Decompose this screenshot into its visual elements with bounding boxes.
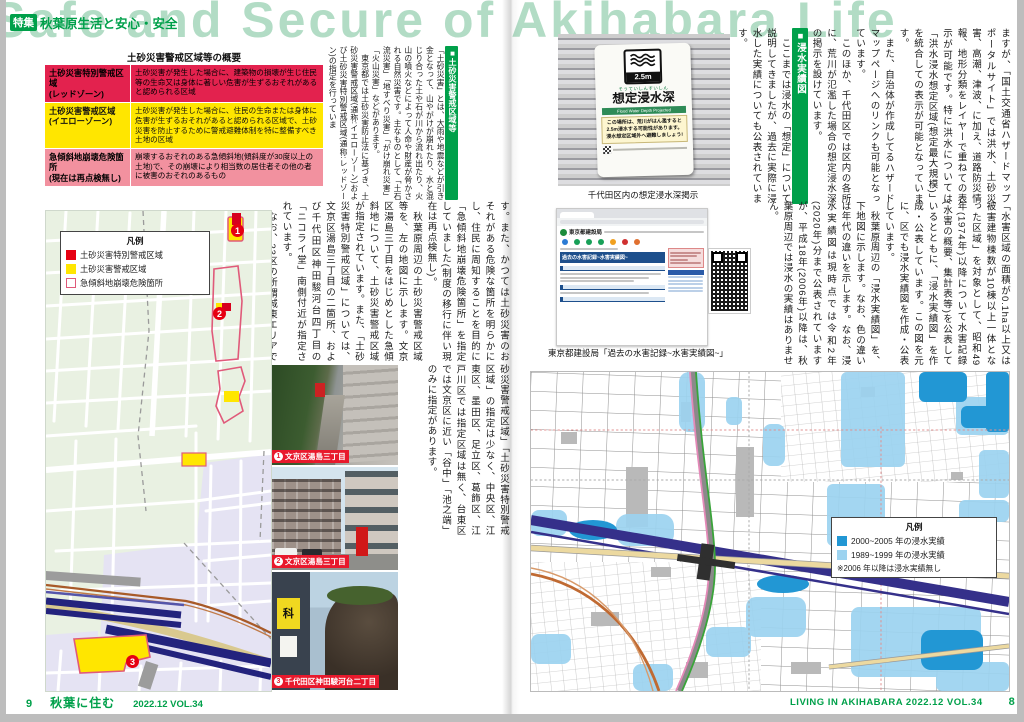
photo-caption: 1 文京区湯島三丁目 [272, 450, 349, 463]
issue-label: 2022.12 VOL.34 [133, 699, 203, 710]
sign-warning-box: この場所は、荒川がはん濫すると 2.5m浸水する可能性があります。 浸水想定区域… [601, 115, 688, 144]
nav-icon [598, 239, 604, 245]
page-edge-left [0, 0, 6, 722]
paragraph: 秋葉原周辺の「浸水実績図」を、下地図に示します。なお、色の違いは年代の違いを示し… [765, 201, 881, 366]
photo-column: 1 文京区湯島三丁目 2 文京区湯島三丁目 科 3 千代田区神田駿河台二丁目 [272, 365, 398, 690]
hazard-table-title: 土砂災害警戒区域等の概要 [45, 50, 323, 64]
photo-yushima-buildings: 2 文京区湯島三丁目 [272, 467, 398, 570]
legend-swatch-pink-outline [66, 278, 76, 288]
legend-swatch-yellow [66, 264, 76, 274]
photo-sign [315, 383, 325, 397]
nav-icon [622, 239, 628, 245]
paragraph: このほか、千代田区では区内の各所に、荒川が氾濫した場合の想定浸水深の掲示を設けて… [808, 28, 852, 204]
article-text-sediment-end: 砂災害警戒区域」「土砂災害特別警戒区域」の指定は少なく、中央区、江東区、墨田区、… [422, 364, 510, 536]
browser-chrome [557, 209, 707, 218]
sign-footer [601, 144, 689, 154]
paragraph: 「土砂災害」とは、大雨や地震などが引き金となって、山やがけが崩れたり、水と混じり… [370, 46, 446, 200]
sediment-hazard-map: 凡例 土砂災害特別警戒区域 土砂災害警戒区域 急傾斜地崩壊危険箇所 1 2 3 [45, 210, 272, 692]
page-banner: 過去の水害記録~水害実績図~ [560, 252, 665, 263]
page-edge-bottom [0, 714, 1024, 722]
site-name: 東京都建設局 [569, 228, 602, 236]
photo-sign: 科 [277, 598, 300, 629]
feature-title: 秋葉原生活と安心・安全 [40, 13, 178, 32]
photo-sign [280, 636, 298, 657]
table-row-desc: 崩壊するおそれのある急傾斜地(傾斜度が30度以上の土地)で、その崩壊により相当数… [131, 149, 323, 186]
nav-icon [562, 239, 568, 245]
legend-swatch-lightblue [837, 550, 847, 560]
paragraph: また、自治体が作成してるハザードマップページへのリンクも可能となっています。 [852, 28, 896, 204]
legend-item: 2000~2005 年の浸水実績 [837, 535, 991, 547]
sidebar-menu-header [668, 270, 704, 275]
table-row-label: 土砂災害特別警戒区域 (レッドゾーン) [45, 65, 130, 102]
sediment-map-legend: 凡例 土砂災害特別警戒区域 土砂災害警戒区域 急傾斜地崩壊危険箇所 [60, 231, 210, 295]
feature-heading: 特集 秋葉原生活と安心・安全 [10, 13, 178, 32]
webpage-sidebar [668, 248, 704, 304]
feature-tag: 特集 [10, 14, 37, 31]
flood-depth-sign: 2.5m そうていしんすいしん 想定浸水深 Flood Water Depth … [594, 43, 693, 177]
footer-left: 9 秋葉に住む 2022.12 VOL.34 [26, 694, 203, 711]
qr-code [709, 249, 750, 313]
paragraph: 秋葉原周辺の土砂災害警戒区域等を、左の地図に示します。文京区湯島三丁目をはじめと… [278, 201, 423, 362]
table-row-desc: 土砂災害が発生した場合に、建築物の損壊が生じ住民等の生命又は身体に著しい危害が生… [131, 65, 323, 102]
hazard-zone-table: 土砂災害警戒区域等の概要 土砂災害特別警戒区域 (レッドゾーン) 土砂災害が発生… [45, 50, 323, 186]
page-fold-gutter [502, 0, 520, 714]
photo-greenery [327, 586, 393, 605]
legend-item: 土砂災害特別警戒区域 [66, 249, 204, 261]
photo-caption: 3 千代田区神田駿河台二丁目 [272, 675, 379, 688]
paragraph: 「水害区域の面積が0.1ha以上又は被害建物棟数が10棟以上一体となった区域」を… [881, 201, 1012, 366]
map-marker-3: 3 [126, 655, 139, 668]
legend-swatch-red [66, 250, 76, 260]
nav-icon [634, 239, 640, 245]
nav-icon [610, 239, 616, 245]
address-bar [560, 220, 704, 224]
photo-building [345, 471, 398, 555]
article-text-hazard-map: ますが、「国土交通省ハザードマップポータルサイト」では洪水、土砂災害、高潮、津波… [735, 28, 1011, 204]
sidebar-menu [668, 276, 704, 292]
browser-toolbar [557, 218, 707, 226]
paragraph: 東京都では土砂災害防止法に基づき、土砂災害警戒区域(通称:イエローゾーン)および… [326, 46, 369, 200]
flood-record-map: 凡例 2000~2005 年の浸水実績 1989~1999 年の浸水実績 ※20… [530, 371, 1010, 692]
legend-swatch-blue [837, 536, 847, 546]
sidebar-notice-box [668, 248, 704, 268]
nav-icon [574, 239, 580, 245]
depth-value: 2.5m [626, 72, 660, 83]
page-number: 9 [26, 698, 32, 710]
sign-photo-caption: 千代田区内の想定浸水深掲示 [552, 189, 734, 201]
table-row-label: 急傾斜地崩壊危険箇所 (現在は再点検無し) [45, 149, 130, 186]
photo-yushima-slope: 1 文京区湯島三丁目 [272, 365, 398, 465]
paragraph: ここまでは浸水の「想定」について説明してきましたが、過去に実際に浸水した実績につ… [735, 28, 792, 204]
legend-title: 凡例 [66, 235, 204, 247]
page-edge-right [1017, 0, 1024, 722]
wave-icon: 2.5m [623, 49, 662, 85]
paragraph: ますが、「国土交通省ハザードマップポータルサイト」では洪水、土砂災害、高潮、津波… [895, 28, 1011, 204]
photo-building [272, 572, 310, 690]
sign-title: 想定浸水深 [600, 91, 688, 107]
photo-building [272, 479, 341, 555]
magazine-title-english: LIVING IN AKIHABARA 2022.12 VOL.34 [790, 697, 983, 708]
flood-map-legend: 凡例 2000~2005 年の浸水実績 1989~1999 年の浸水実績 ※20… [831, 517, 997, 578]
photo-caption: 2 文京区湯島三丁目 [272, 555, 349, 568]
legend-item: 急傾斜地崩壊危険箇所 [66, 277, 204, 289]
legend-note: ※2006 年以降は浸水実績無し [837, 563, 991, 574]
photo-building [343, 365, 398, 463]
paragraph: す。また、かつては土砂災害のおそれがある危険な箇所を明らかにし、住民に周知するこ… [423, 201, 510, 362]
paragraph: 砂災害警戒区域」「土砂災害特別警戒区域」の指定は少なく、中央区、江東区、墨田区、… [423, 364, 510, 536]
photo-vending-machine [356, 527, 367, 556]
site-nav-icons [562, 239, 702, 245]
footer-right: LIVING IN AKIHABARA 2022.12 VOL.34 8 [790, 696, 1015, 708]
article-text-sediment-intro: ■土砂災害警戒区域等 「土砂災害」とは、大雨や地震などが引き金となって、山やがけ… [318, 46, 458, 200]
website-screenshot-caption: 東京都建設局「過去の水害記録~水害実績図~」 [548, 347, 776, 359]
article-text-flood-record: 「水害区域の面積が0.1ha以上又は被害建物棟数が10棟以上一体となった区域」を… [748, 201, 1011, 366]
map-marker-2: 2 [213, 307, 226, 320]
site-logo-icon [560, 229, 567, 236]
website-screenshot: 東京都建設局 過去の水害記録~水害実績図~ [556, 208, 708, 346]
sign-subtitle-english: Flood Water Depth Projected [602, 106, 686, 115]
table-row-desc: 土砂災害が発生した場合に、住民の生命または身体に危害が生ずるおそれがあると認めら… [131, 103, 323, 148]
legend-title: 凡例 [837, 521, 991, 533]
section-heading-flood-record: ■浸水実績図 [792, 28, 809, 204]
qr-code-icon [603, 146, 611, 154]
browser-tab [560, 212, 594, 218]
photo-surugadai-cliff: 科 3 千代田区神田駿河台二丁目 [272, 572, 398, 690]
webpage-body: 東京都建設局 過去の水害記録~水害実績図~ [557, 226, 707, 306]
magazine-logo: 秋葉に住む [50, 694, 115, 711]
nav-icon [586, 239, 592, 245]
article-text-sediment-middle: す。また、かつては土砂災害のおそれがある危険な箇所を明らかにし、住民に周知するこ… [263, 201, 510, 362]
page-number: 8 [1009, 696, 1015, 708]
legend-item: 土砂災害警戒区域 [66, 263, 204, 275]
legend-item: 1989~1999 年の浸水実績 [837, 549, 991, 561]
flood-depth-sign-photo: 2.5m そうていしんすいしん 想定浸水深 Flood Water Depth … [558, 34, 730, 186]
table-row-label: 土砂災害警戒区域 (イエローゾーン) [45, 103, 130, 148]
map-marker-1: 1 [231, 224, 244, 237]
section-heading-sediment: ■土砂災害警戒区域等 [445, 46, 458, 200]
